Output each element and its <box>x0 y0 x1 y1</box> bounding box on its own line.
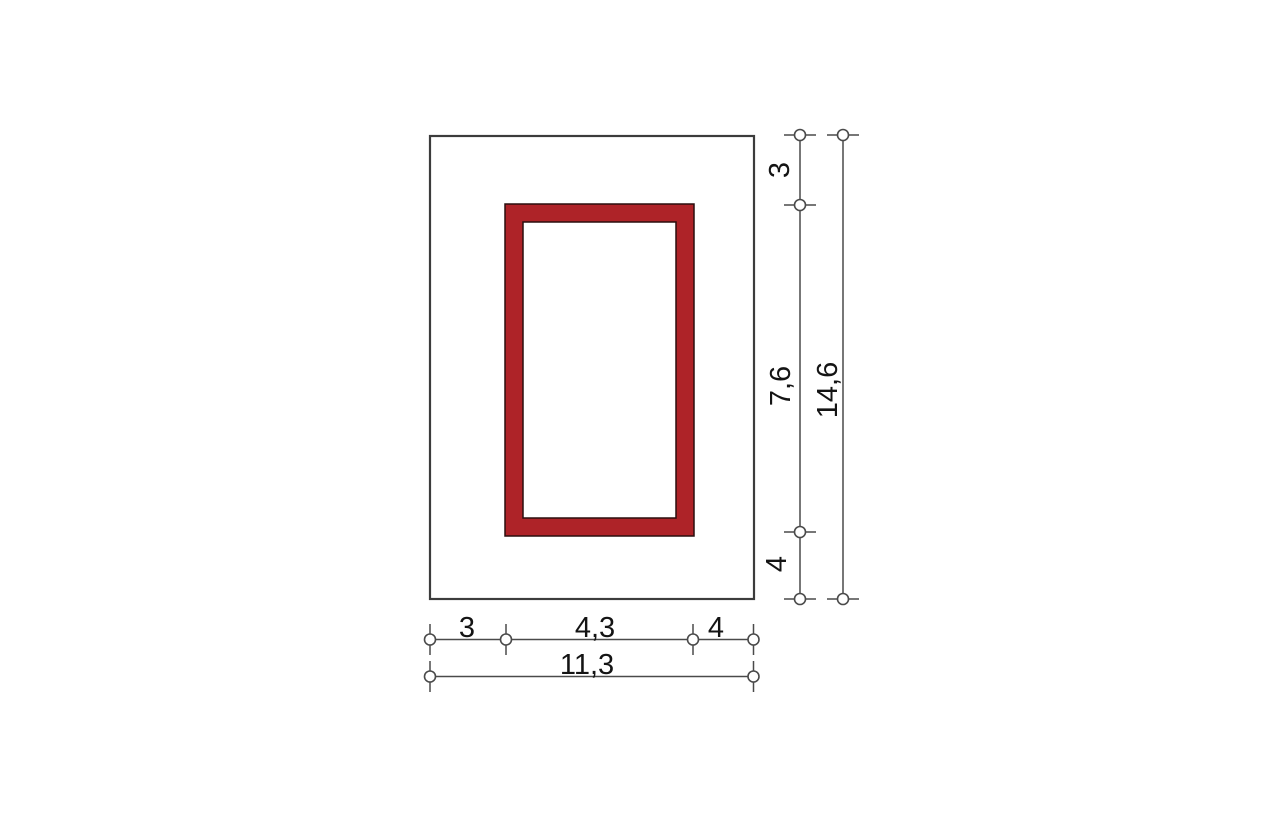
dim-label-total-width: 11,3 <box>560 649 614 681</box>
dim-label-bottom-right-offset: 4 <box>708 612 724 644</box>
dim-node <box>795 200 806 211</box>
dim-label-right-top-offset: 3 <box>764 162 796 178</box>
dim-node <box>838 130 849 141</box>
frame-inner-opening <box>523 222 676 518</box>
dim-label-right-opening-height: 7,6 <box>765 366 797 406</box>
dim-node <box>425 634 436 645</box>
dim-label-bottom-opening-width: 4,3 <box>575 612 615 644</box>
drawing-canvas: 3 4,3 4 11,3 3 7,6 4 14,6 <box>0 0 1280 822</box>
dim-node <box>688 634 699 645</box>
dim-node <box>795 594 806 605</box>
dim-node <box>795 130 806 141</box>
technical-drawing: 3 4,3 4 11,3 3 7,6 4 14,6 <box>0 0 1280 822</box>
dim-node <box>748 671 759 682</box>
dim-label-total-height: 14,6 <box>812 362 844 418</box>
dim-node <box>748 634 759 645</box>
dim-label-bottom-left-offset: 3 <box>459 612 475 644</box>
dim-node <box>838 594 849 605</box>
dim-node <box>501 634 512 645</box>
dim-node <box>795 527 806 538</box>
dim-label-right-bottom-offset: 4 <box>761 556 793 572</box>
dim-node <box>425 671 436 682</box>
